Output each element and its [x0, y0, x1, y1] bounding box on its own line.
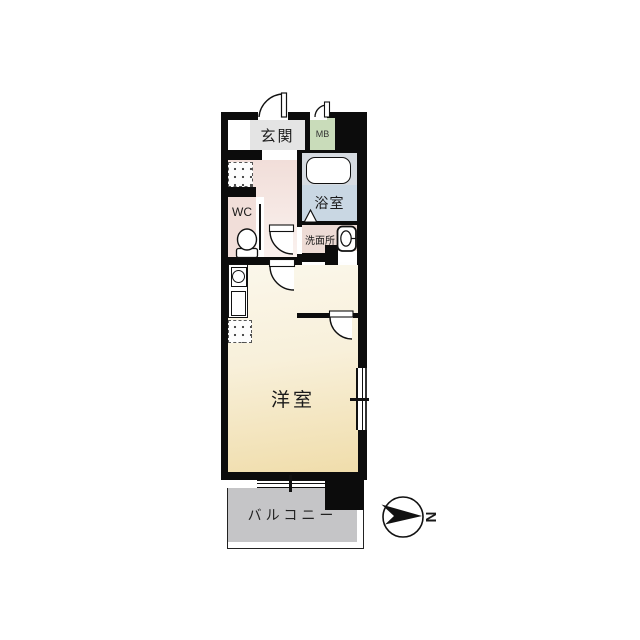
- genkan-label: 玄関: [260, 125, 294, 146]
- shoe-cabinet-area: [228, 120, 250, 150]
- balcony-partition-block: [325, 480, 364, 510]
- kitchen-cabinet: [231, 291, 246, 316]
- wic-door-opening: [330, 312, 353, 318]
- refrigerator-space-icon: [228, 320, 252, 343]
- refrigerator-space-icon: [228, 162, 253, 187]
- washroom-door-opening: [297, 227, 302, 254]
- room-wc: WC: [228, 197, 256, 257]
- compass-needle-icon: [382, 505, 423, 525]
- right-window-tick: [350, 398, 369, 401]
- compass-north-label: N: [422, 505, 440, 529]
- compass-circle: [383, 497, 423, 537]
- room-bathroom: 浴室: [302, 185, 357, 221]
- meter-box-label: MB: [316, 129, 330, 139]
- balcony-label: バルコニー: [248, 505, 338, 525]
- western-room-label: 洋室: [253, 386, 333, 410]
- wc-wall: [228, 187, 256, 197]
- meter-box: MB: [310, 118, 335, 150]
- kitchenette-icon: [228, 264, 248, 318]
- floor-plan: 玄関 MB WC 浴室 洗面所 ウォークイン クローゼット 洋室 バルコニー: [0, 0, 640, 640]
- room-genkan: 玄関: [250, 120, 305, 150]
- wc-door: [256, 197, 264, 257]
- balcony-window-tick: [289, 475, 292, 492]
- wc-label: WC: [232, 205, 252, 219]
- kitchen-sink-icon: [232, 270, 245, 283]
- entrance-step: [262, 150, 298, 160]
- wic-upper-area: [338, 251, 357, 262]
- bathroom-label: 浴室: [315, 193, 345, 213]
- bathtub-icon: [306, 157, 351, 184]
